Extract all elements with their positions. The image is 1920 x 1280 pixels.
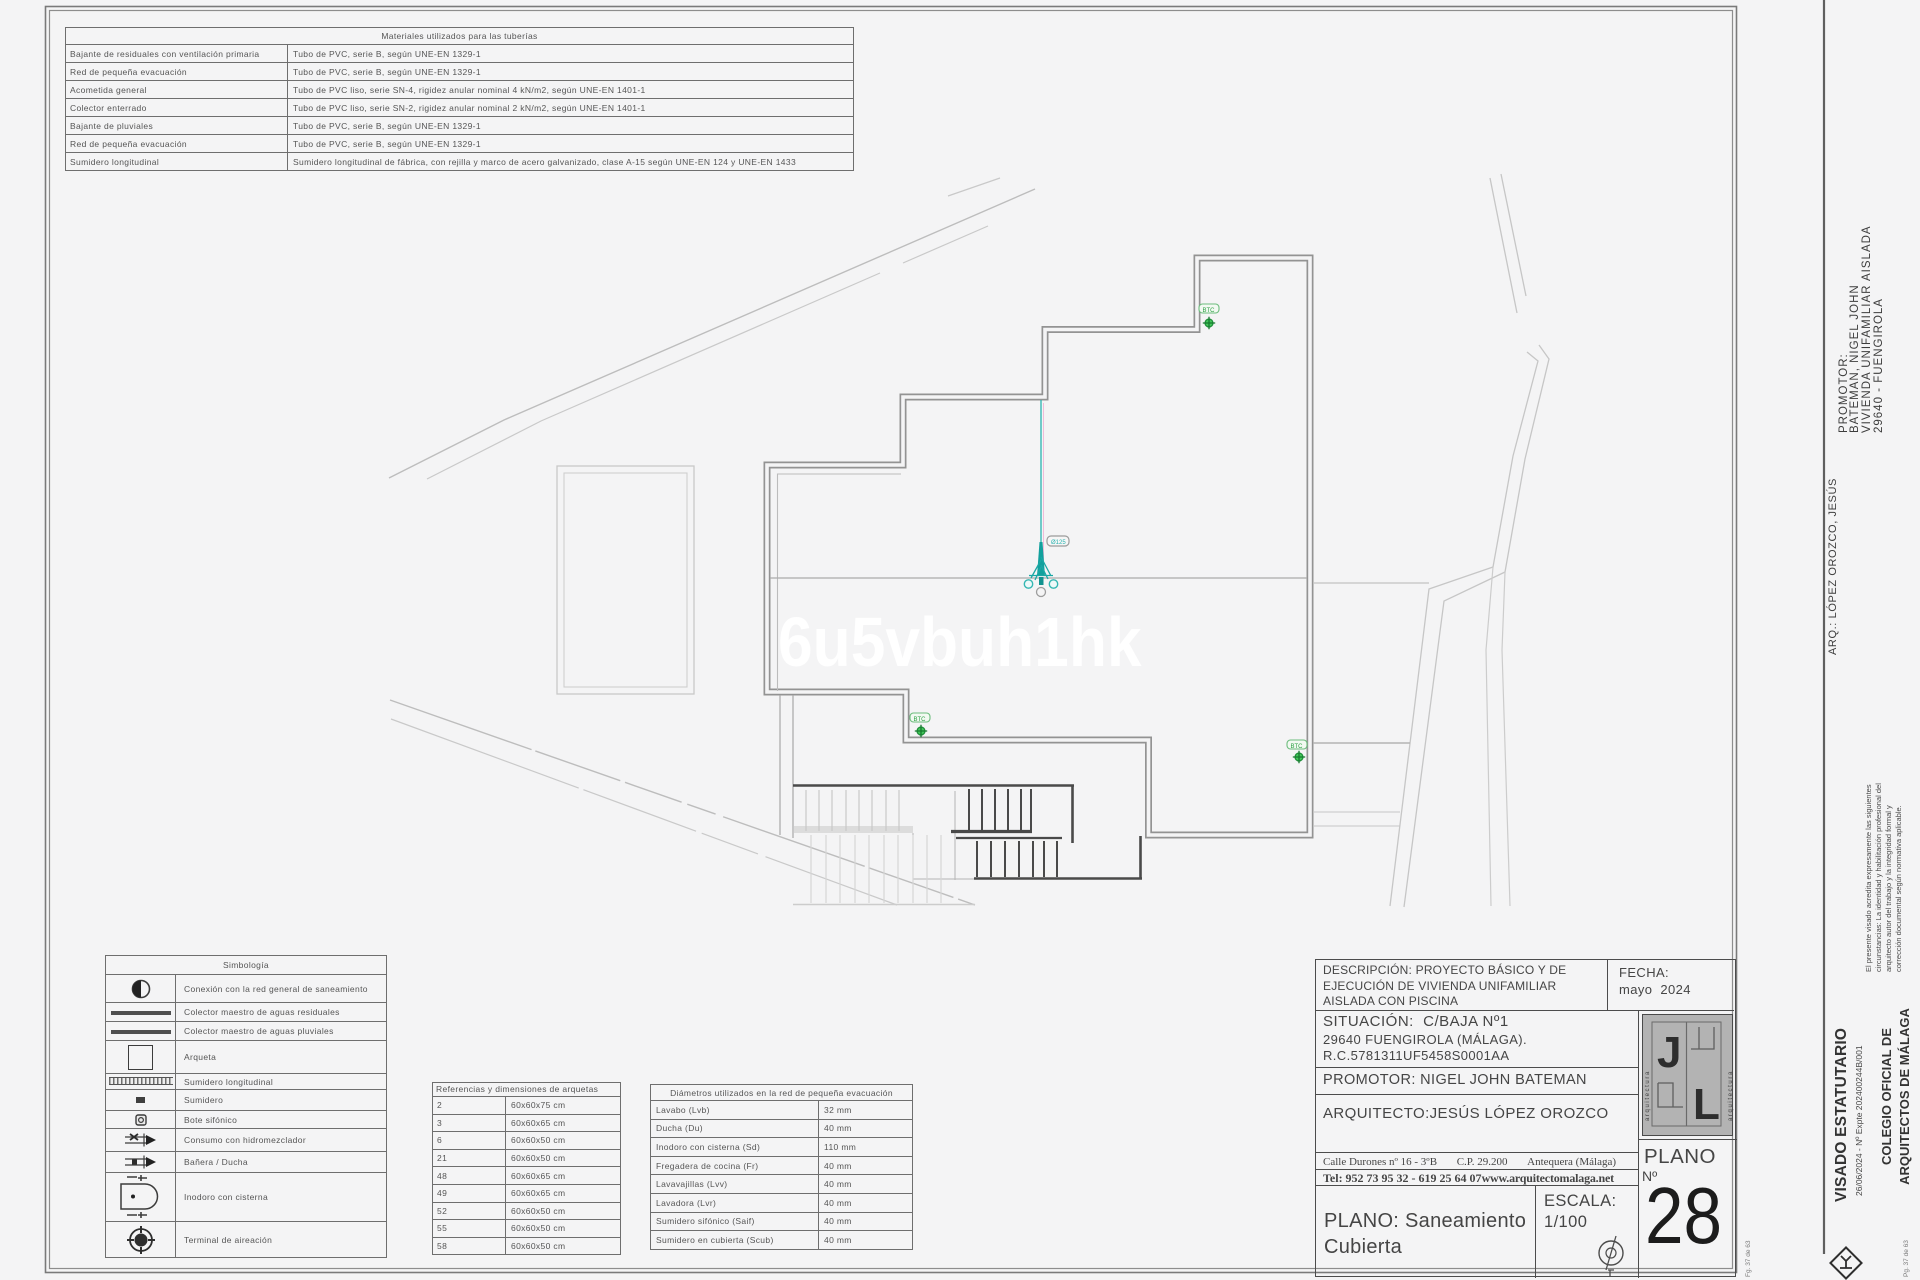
svg-text:BTC: BTC <box>1203 308 1216 314</box>
svg-text:L: L <box>1693 1080 1720 1129</box>
svg-text:BTC: BTC <box>914 717 927 723</box>
svg-text:J: J <box>1657 1028 1681 1077</box>
svg-text:BTC: BTC <box>1291 744 1304 750</box>
svg-text:Ø125: Ø125 <box>1051 540 1066 546</box>
